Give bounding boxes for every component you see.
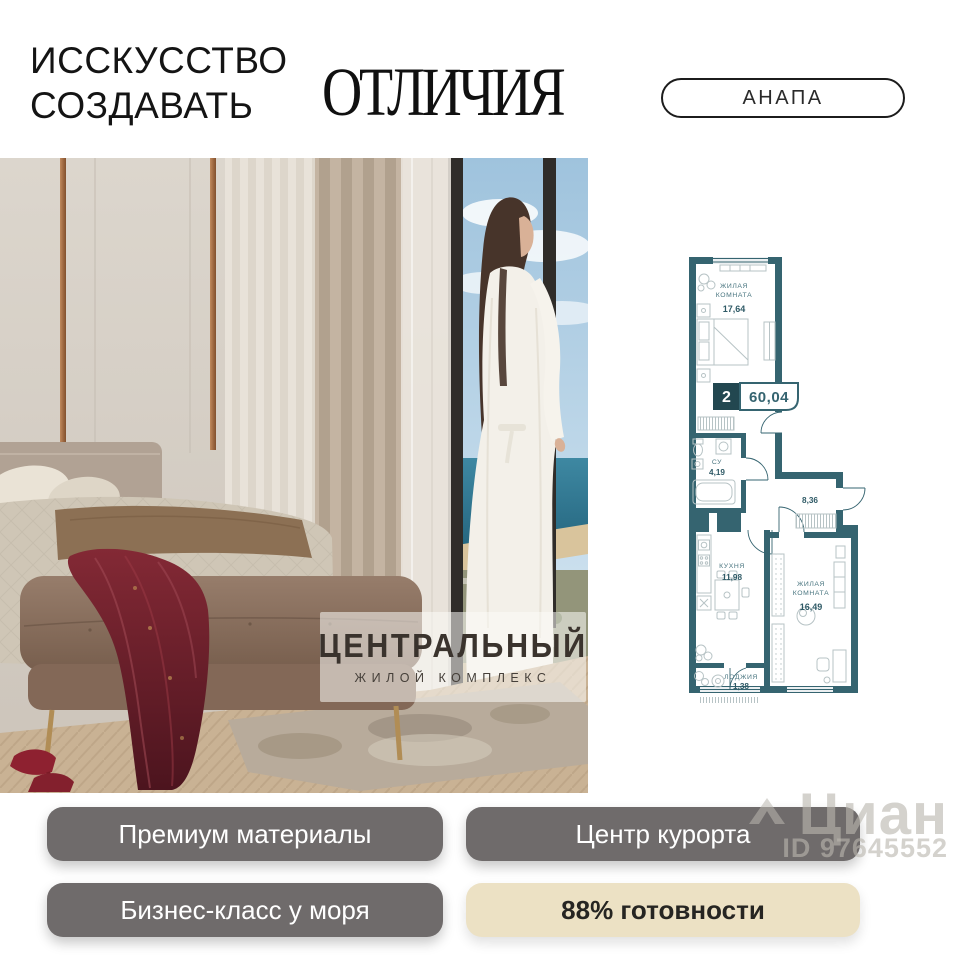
badge-rooms: 2 — [722, 389, 731, 406]
logo-title: ЦЕНТРАЛЬНЫЙ — [318, 627, 587, 665]
kitchen-name: КУХНЯ — [719, 563, 745, 570]
kitchen-area: 11,98 — [722, 573, 742, 582]
badge-area: 60,04 — [749, 389, 789, 406]
feature-buttons: Премиум материалы Центр курорта Бизнес-к… — [47, 807, 860, 937]
room2-name-l2: КОМНАТА — [793, 590, 829, 597]
room2-area: 16,49 — [800, 602, 823, 612]
copper-strip — [210, 158, 216, 450]
logo-card: ЦЕНТРАЛЬНЫЙ ЖИЛОЙ КОМПЛЕКС — [320, 612, 586, 702]
floor-plan: 2 60,04 ЖИЛАЯ КОМНАТА 17,64 СУ 4,19 8,36… — [684, 252, 876, 708]
feature-business-class[interactable]: Бизнес-класс у моря — [47, 883, 443, 937]
feature-resort-center[interactable]: Центр курорта — [466, 807, 860, 861]
copper-strip — [60, 158, 66, 458]
plan-area-badge: 2 60,04 — [713, 383, 798, 410]
loggia-area: 1,38 — [733, 682, 749, 691]
bath-name: СУ — [712, 459, 722, 466]
logo-subtitle: ЖИЛОЙ КОМПЛЕКС — [355, 671, 552, 685]
feature-premium-materials[interactable]: Премиум материалы — [47, 807, 443, 861]
ad-creative: ИССКУССТВО СОЗДАВАТЬ ОТЛИЧИЯ АНАПА — [0, 0, 960, 960]
brand-word: ОТЛИЧИЯ — [322, 52, 562, 133]
tagline-line2: СОЗДАВАТЬ — [30, 83, 288, 128]
hall-area: 8,36 — [802, 496, 818, 505]
room2-name-l1: ЖИЛАЯ — [797, 581, 825, 588]
location-badge[interactable]: АНАПА — [661, 78, 905, 118]
loggia-name: ЛОДЖИЯ — [724, 674, 758, 681]
tagline: ИССКУССТВО СОЗДАВАТЬ — [30, 38, 288, 128]
bath-area: 4,19 — [709, 468, 725, 477]
feature-readiness[interactable]: 88% готовности — [466, 883, 860, 937]
tagline-line1: ИССКУССТВО — [30, 38, 288, 83]
room1-area: 17,64 — [723, 304, 746, 314]
room1-name-l2: КОМНАТА — [716, 292, 752, 299]
room1-name-l1: ЖИЛАЯ — [720, 283, 748, 290]
